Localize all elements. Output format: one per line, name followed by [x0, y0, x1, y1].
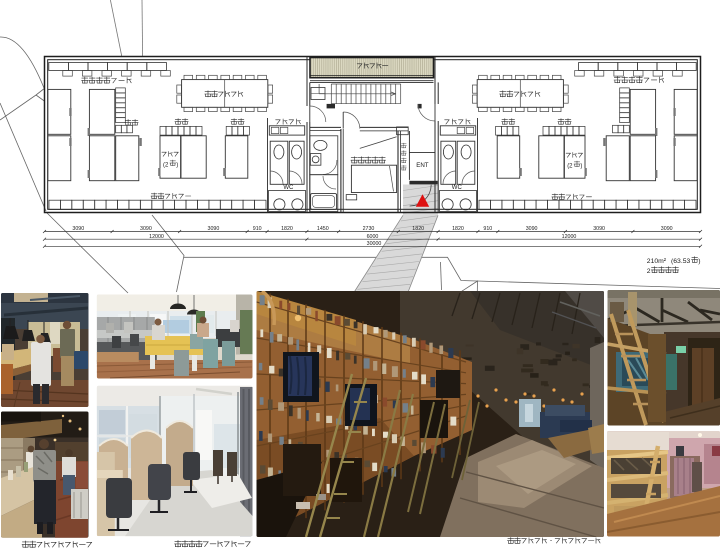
svg-text:6000: 6000 — [367, 234, 379, 240]
svg-text:3090: 3090 — [140, 226, 152, 232]
svg-text:WC: WC — [452, 185, 463, 191]
svg-text:2730: 2730 — [363, 226, 375, 232]
svg-text:): ) — [580, 163, 582, 169]
svg-text:210m²: 210m² — [647, 258, 667, 265]
svg-text:3090: 3090 — [72, 226, 84, 232]
svg-text:1450: 1450 — [317, 226, 329, 232]
svg-text:2: 2 — [647, 268, 651, 275]
svg-text:3090: 3090 — [661, 226, 673, 232]
svg-text:WC: WC — [283, 185, 294, 191]
svg-text:(2: (2 — [163, 162, 169, 168]
svg-text:1820: 1820 — [281, 226, 293, 232]
svg-text:3090: 3090 — [593, 226, 605, 232]
svg-text:12000: 12000 — [562, 234, 577, 240]
svg-text:3090: 3090 — [526, 226, 538, 232]
svg-text:): ) — [698, 258, 700, 265]
svg-text:910: 910 — [483, 226, 492, 232]
svg-text:1820: 1820 — [412, 226, 424, 232]
svg-text:1820: 1820 — [452, 226, 464, 232]
svg-text:30000: 30000 — [367, 241, 382, 247]
svg-text:): ) — [176, 162, 178, 168]
svg-text:910: 910 — [253, 226, 262, 232]
svg-text:12000: 12000 — [149, 234, 164, 240]
svg-text:(63.53: (63.53 — [671, 258, 690, 265]
svg-text:(2: (2 — [567, 163, 573, 169]
svg-text:ENT: ENT — [416, 162, 429, 169]
svg-text:3090: 3090 — [208, 226, 220, 232]
